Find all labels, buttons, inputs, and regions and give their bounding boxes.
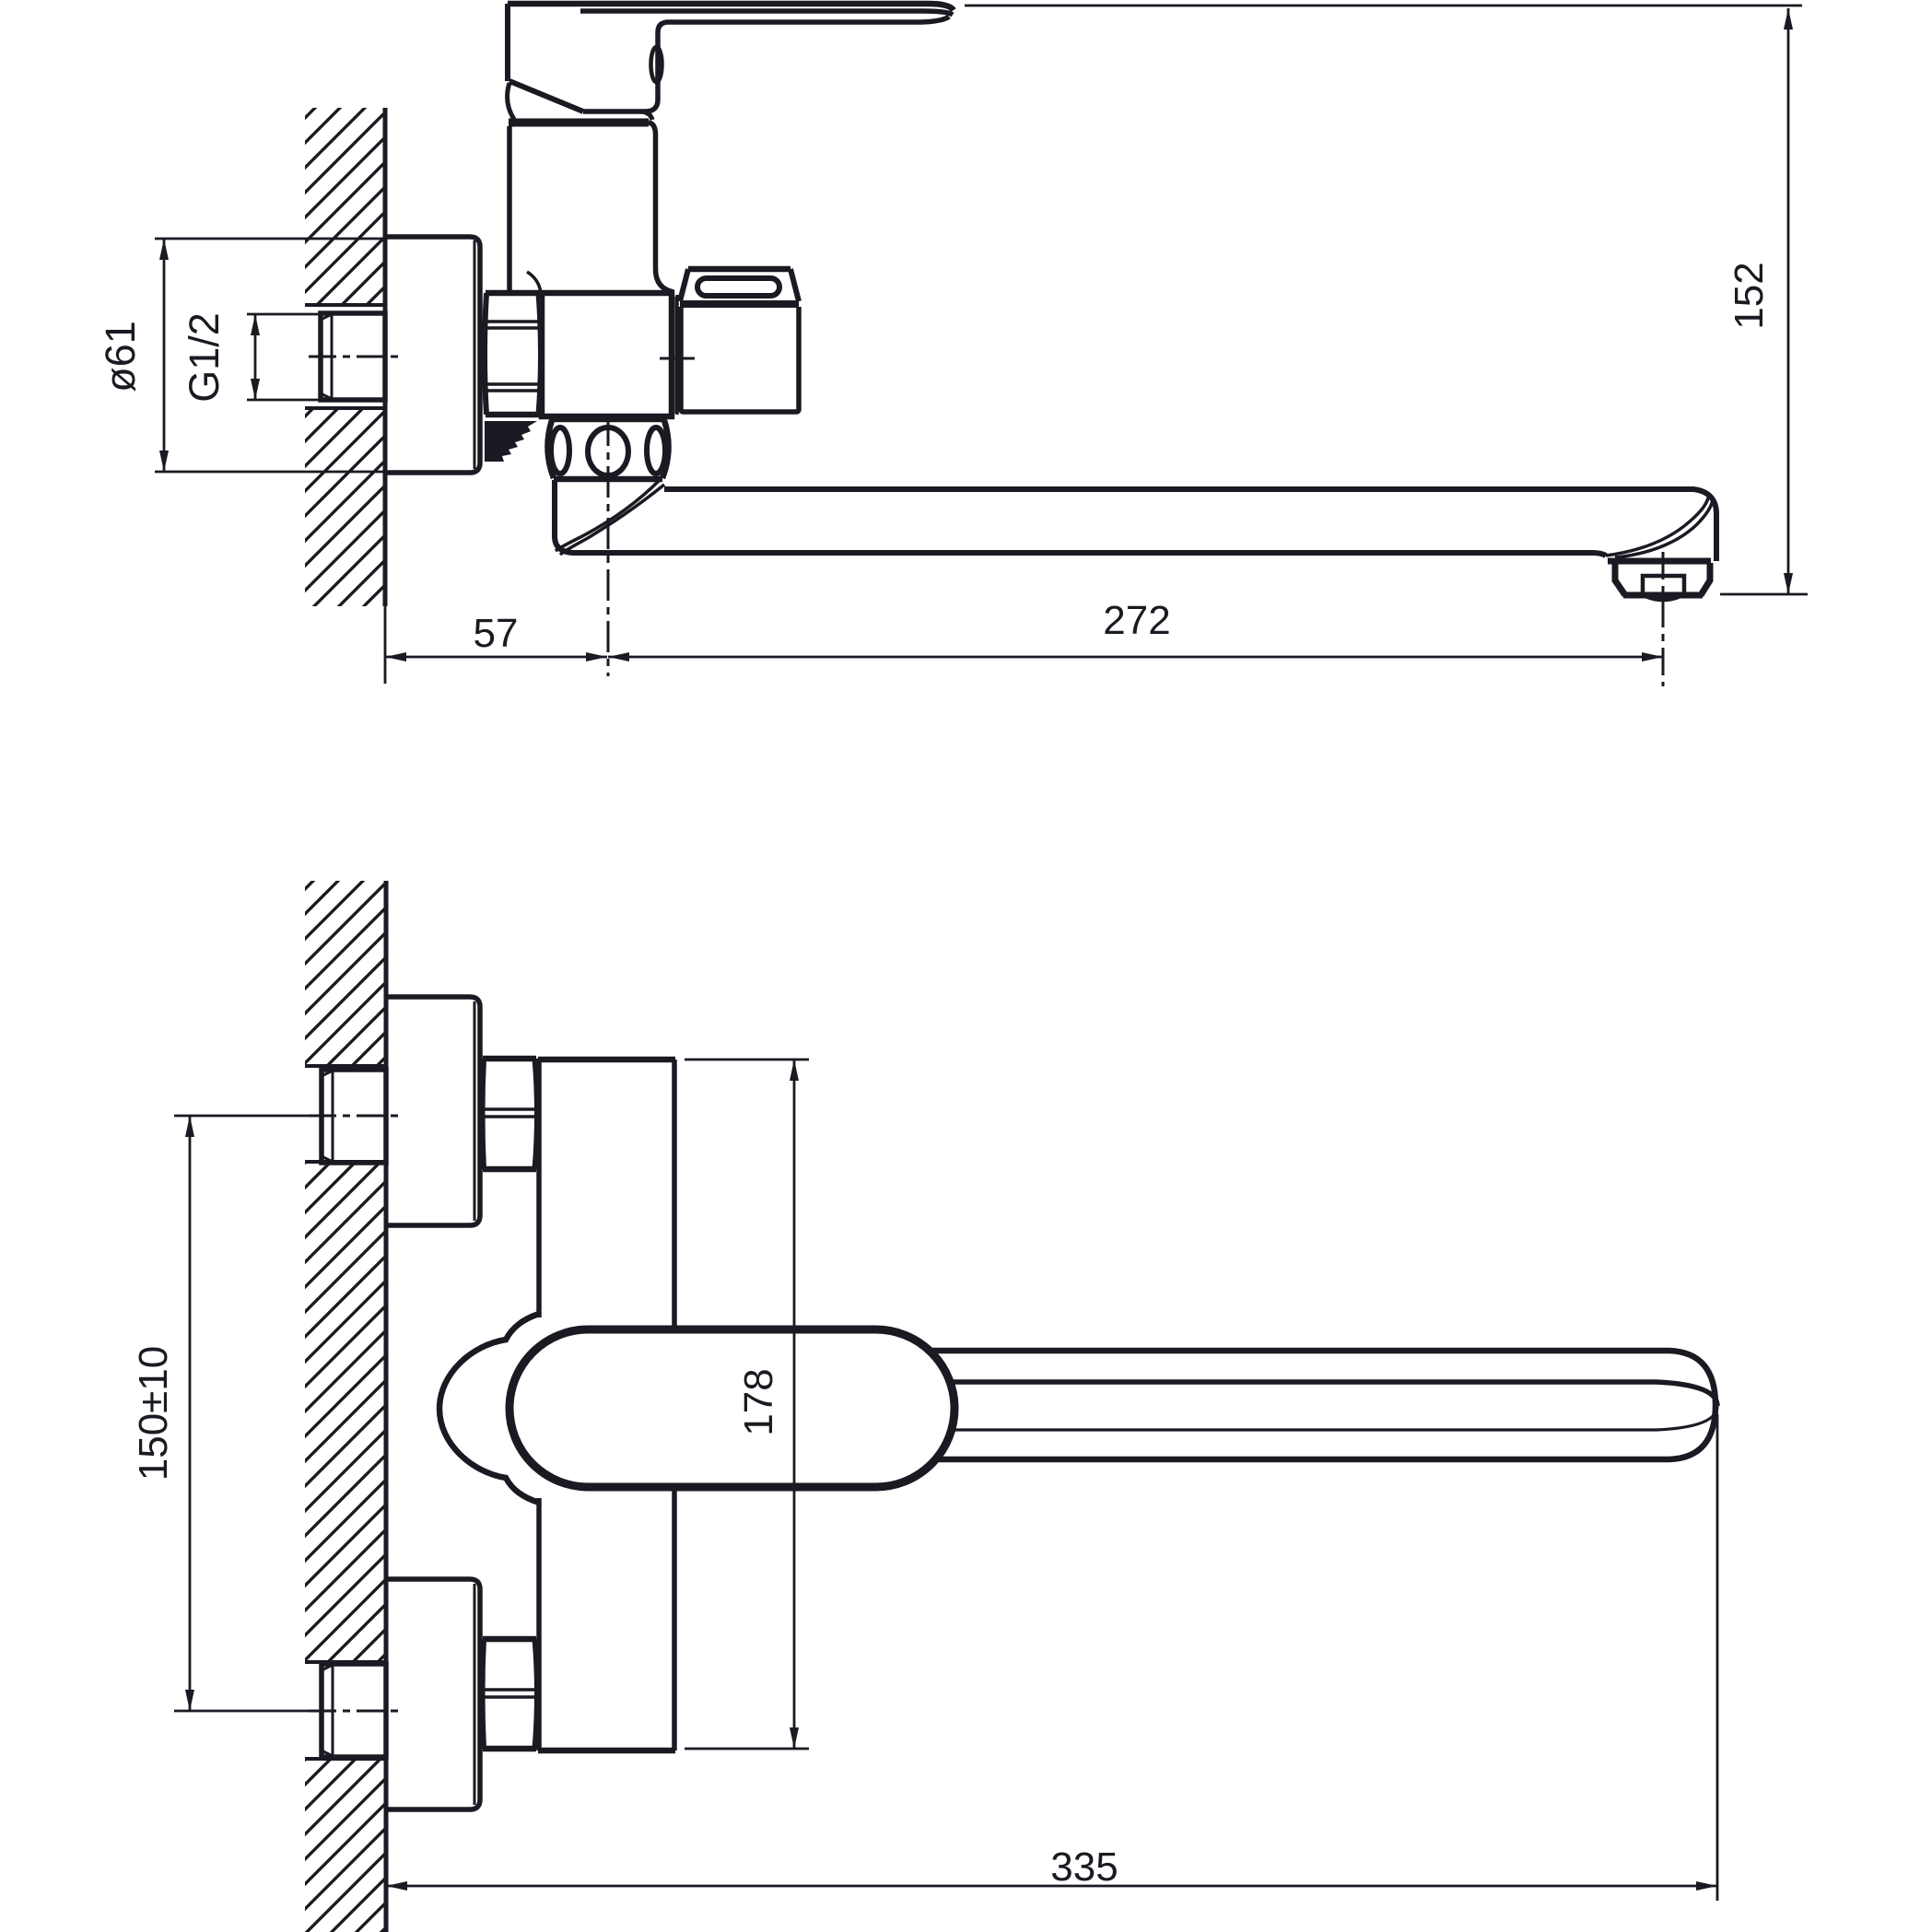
svg-text:152: 152: [1727, 262, 1772, 329]
svg-text:G1/2: G1/2: [181, 312, 228, 403]
svg-text:150±10: 150±10: [131, 1346, 176, 1481]
svg-text:335: 335: [1050, 1844, 1118, 1890]
svg-text:178: 178: [736, 1368, 781, 1435]
svg-text:272: 272: [1103, 598, 1170, 643]
svg-text:ø61: ø61: [97, 321, 144, 392]
svg-text:57: 57: [474, 611, 519, 656]
